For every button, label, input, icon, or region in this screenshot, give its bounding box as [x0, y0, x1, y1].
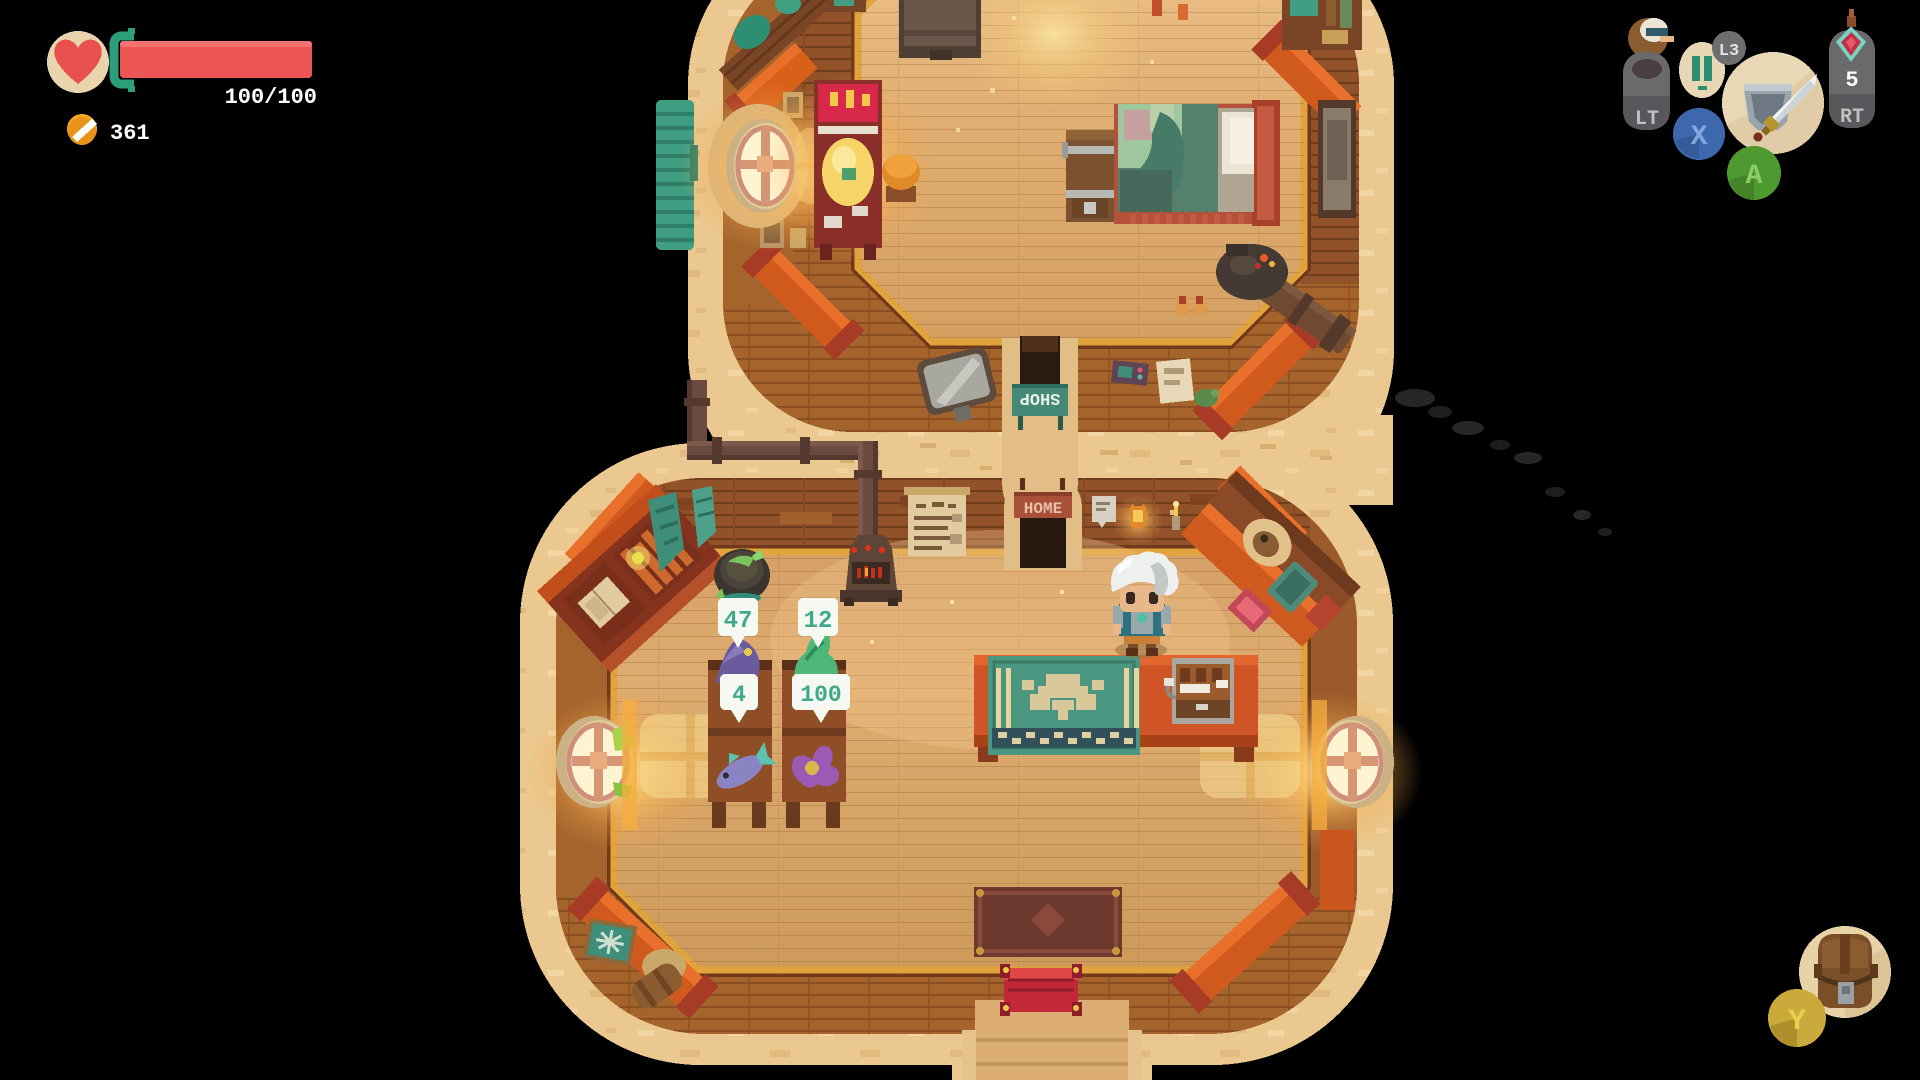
svg-text:RT: RT	[1840, 106, 1864, 129]
svg-text:X: X	[1691, 122, 1708, 153]
svg-text:12: 12	[804, 608, 833, 635]
svg-text:4: 4	[732, 682, 746, 708]
svg-text:Y: Y	[1788, 1005, 1806, 1039]
svg-text:SHOP: SHOP	[1020, 388, 1061, 407]
svg-text:L3: L3	[1719, 42, 1739, 61]
svg-text:100/100: 100/100	[225, 85, 317, 110]
svg-text:100: 100	[800, 682, 841, 708]
svg-text:5: 5	[1845, 68, 1858, 93]
svg-text:A: A	[1746, 161, 1763, 192]
svg-text:HOME: HOME	[1024, 500, 1062, 518]
svg-text:LT: LT	[1635, 108, 1659, 131]
svg-text:47: 47	[724, 608, 753, 635]
svg-text:361: 361	[110, 121, 150, 146]
